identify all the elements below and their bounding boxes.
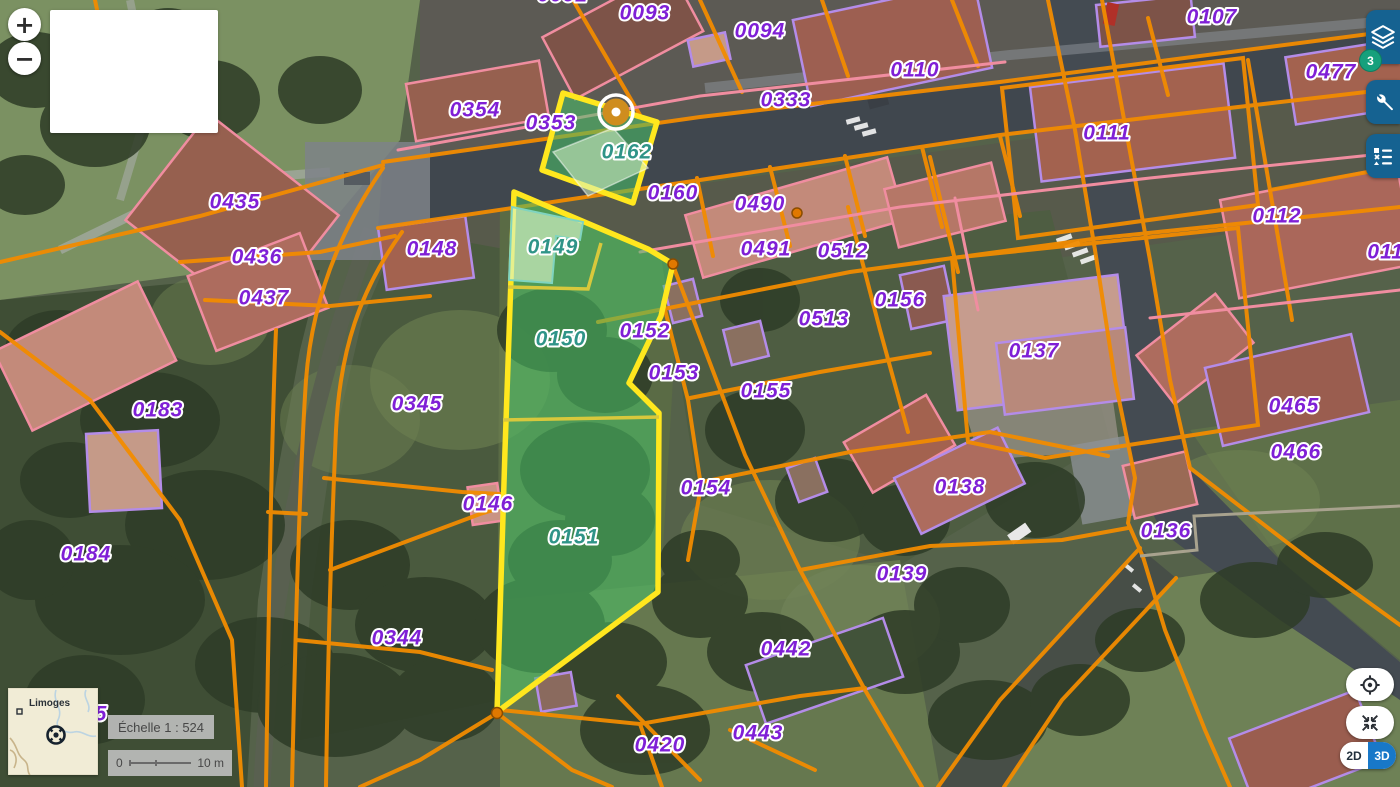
parcel-label-0111[interactable]: 0111 xyxy=(1083,122,1131,145)
view-mode-toggle[interactable]: 2D 3D xyxy=(1340,742,1396,769)
parcel-label-0344[interactable]: 0344 xyxy=(372,627,423,650)
parcel-label-0162[interactable]: 0162 xyxy=(602,141,653,164)
parcel-label-0156[interactable]: 0156 xyxy=(875,289,926,312)
legend-button[interactable] xyxy=(1366,134,1400,178)
scale-text: Échelle 1 : 524 xyxy=(118,720,204,735)
parcel-label-0139[interactable]: 0139 xyxy=(877,563,928,586)
parcel-label-0148[interactable]: 0148 xyxy=(407,238,458,261)
scale-bar-start: 0 xyxy=(116,756,123,770)
collapse-button[interactable] xyxy=(1346,706,1394,739)
parcel-label-0490[interactable]: 0490 xyxy=(735,193,786,216)
parcel-label-0345[interactable]: 0345 xyxy=(392,393,443,416)
legend-icon xyxy=(1371,144,1395,168)
overview-minimap[interactable]: Limoges xyxy=(8,688,98,775)
parcel-label-0151[interactable]: 0151 xyxy=(549,526,600,549)
parcel-label-0333[interactable]: 0333 xyxy=(761,89,812,112)
parcel-label-0477[interactable]: 0477 xyxy=(1306,61,1357,84)
layers-button[interactable]: 3 xyxy=(1366,10,1400,64)
parcel-label-0491[interactable]: 0491 xyxy=(741,238,792,261)
parcel-label-0110[interactable]: 0110 xyxy=(890,59,939,82)
scale-bar-end: 10 m xyxy=(197,756,224,770)
parcel-label-0093[interactable]: 0093 xyxy=(620,2,671,25)
minus-icon: − xyxy=(14,45,34,73)
parcel-label-0512[interactable]: 0512 xyxy=(818,240,869,263)
parcel-label-0107[interactable]: 0107 xyxy=(1187,6,1238,29)
parcel-label-0465[interactable]: 0465 xyxy=(1269,395,1320,418)
parcel-label-0154[interactable]: 0154 xyxy=(681,477,732,500)
plus-icon: + xyxy=(14,11,34,39)
scale-bar: 0 10 m xyxy=(108,750,232,776)
collapse-icon xyxy=(1359,712,1381,734)
parcel-label-0513[interactable]: 0513 xyxy=(799,308,850,331)
parcel-label-0146[interactable]: 0146 xyxy=(463,493,514,516)
selected-point-marker xyxy=(599,95,633,129)
parcel-label-0152[interactable]: 0152 xyxy=(620,320,671,343)
parcel-label-0420[interactable]: 0420 xyxy=(635,734,686,757)
parcel-label-0437[interactable]: 0437 xyxy=(239,287,290,310)
parcel-label-0442[interactable]: 0442 xyxy=(761,638,812,661)
parcel-label-0136[interactable]: 0136 xyxy=(1141,520,1192,543)
parcel-label-0466[interactable]: 0466 xyxy=(1271,441,1322,464)
parcel-label-0443[interactable]: 0443 xyxy=(733,722,784,745)
geolocate-button[interactable] xyxy=(1346,668,1394,701)
mode-3d[interactable]: 3D xyxy=(1368,742,1396,769)
parcel-label-0137[interactable]: 0137 xyxy=(1009,340,1060,363)
parcel-label-0184[interactable]: 0184 xyxy=(61,543,112,566)
map-viewer: 0092009300940110010704770333011103540353… xyxy=(0,0,1400,787)
scale-indicator: Échelle 1 : 524 xyxy=(108,715,214,739)
parcel-label-0149[interactable]: 0149 xyxy=(528,236,579,259)
parcel-label-0436[interactable]: 0436 xyxy=(232,246,283,269)
layers-count-badge: 3 xyxy=(1359,49,1382,72)
mode-2d[interactable]: 2D xyxy=(1340,742,1368,769)
geolocate-icon xyxy=(1359,674,1381,696)
wrench-icon xyxy=(1371,90,1395,114)
tools-button[interactable] xyxy=(1366,80,1400,124)
parcel-label-0113[interactable]: 0113 xyxy=(1367,241,1400,264)
parcel-label-0094[interactable]: 0094 xyxy=(735,20,786,43)
parcel-label-0138[interactable]: 0138 xyxy=(935,476,986,499)
parcel-label-0353[interactable]: 0353 xyxy=(526,112,577,135)
layers-icon xyxy=(1370,24,1396,50)
parcel-label-0150[interactable]: 0150 xyxy=(536,328,587,351)
blank-panel xyxy=(50,10,218,133)
parcel-label-0153[interactable]: 0153 xyxy=(649,362,700,385)
scale-bar-line xyxy=(129,762,192,764)
minimap-city-label: Limoges xyxy=(29,698,71,709)
parcel-label-0160[interactable]: 0160 xyxy=(648,182,699,205)
parcel-label-0183[interactable]: 0183 xyxy=(133,399,184,422)
parcel-label-0092[interactable]: 0092 xyxy=(538,0,589,7)
zoom-out-button[interactable]: − xyxy=(8,42,41,75)
zoom-in-button[interactable]: + xyxy=(8,8,41,41)
parcel-label-0435[interactable]: 0435 xyxy=(210,191,261,214)
parcel-label-0155[interactable]: 0155 xyxy=(741,380,792,403)
parcel-label-0354[interactable]: 0354 xyxy=(450,99,501,122)
parcel-label-0112[interactable]: 0112 xyxy=(1252,205,1301,228)
